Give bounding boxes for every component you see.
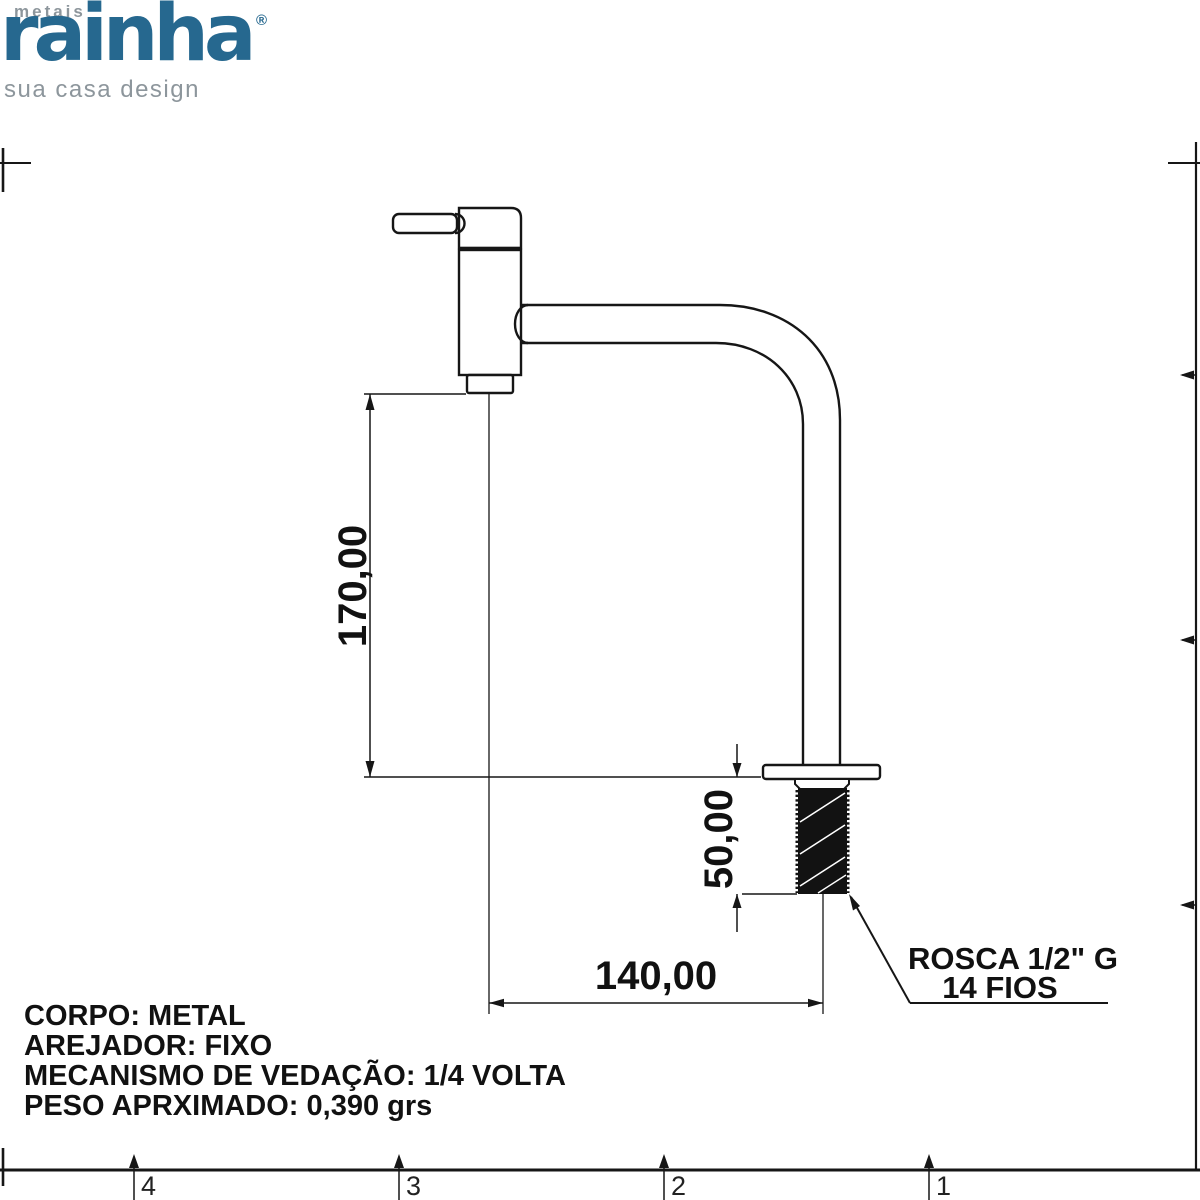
centerlines bbox=[489, 394, 823, 1014]
frame-right-arrows bbox=[1180, 371, 1196, 910]
faucet-cap bbox=[459, 208, 521, 248]
zone-label-1: 1 bbox=[936, 1171, 951, 1200]
zone-label-3: 3 bbox=[406, 1171, 421, 1200]
spout-outer-edge bbox=[521, 305, 840, 765]
faucet-outline bbox=[393, 208, 880, 894]
faucet-body bbox=[459, 250, 521, 375]
dim-reach: 140,00 bbox=[489, 954, 823, 1007]
spec-seal: MECANISMO DE VEDAÇÃO: 1/4 VOLTA bbox=[24, 1061, 566, 1091]
deck-flange bbox=[763, 765, 880, 779]
drawing-sheet: metais rainha ® sua casa design bbox=[0, 0, 1200, 1200]
spout-inner-edge bbox=[521, 343, 803, 765]
thread-leader-note: ROSCA 1/2" G 14 FIOS bbox=[849, 894, 1118, 1005]
zone-label-4: 4 bbox=[141, 1171, 156, 1200]
threaded-shank bbox=[798, 788, 848, 894]
spec-body: CORPO: METAL bbox=[24, 1001, 566, 1031]
faucet-handle bbox=[393, 214, 457, 233]
dim-reach-value: 140,00 bbox=[595, 954, 717, 998]
spec-list: CORPO: METAL AREJADOR: FIXO MECANISMO DE… bbox=[24, 1001, 566, 1121]
spec-weight: PESO APRXIMADO: 0,390 grs bbox=[24, 1091, 566, 1121]
flange-neck bbox=[795, 779, 849, 789]
thread-note-line2: 14 FIOS bbox=[942, 970, 1057, 1005]
faucet-base bbox=[467, 375, 513, 393]
dim-thread-value: 50,00 bbox=[697, 789, 741, 889]
frame-bottom-markers: 4 3 2 1 bbox=[129, 1154, 951, 1200]
spec-aerator: AREJADOR: FIXO bbox=[24, 1031, 566, 1061]
dim-height-value: 170,00 bbox=[331, 525, 375, 647]
zone-label-2: 2 bbox=[671, 1171, 686, 1200]
dim-height: 170,00 bbox=[331, 394, 761, 777]
